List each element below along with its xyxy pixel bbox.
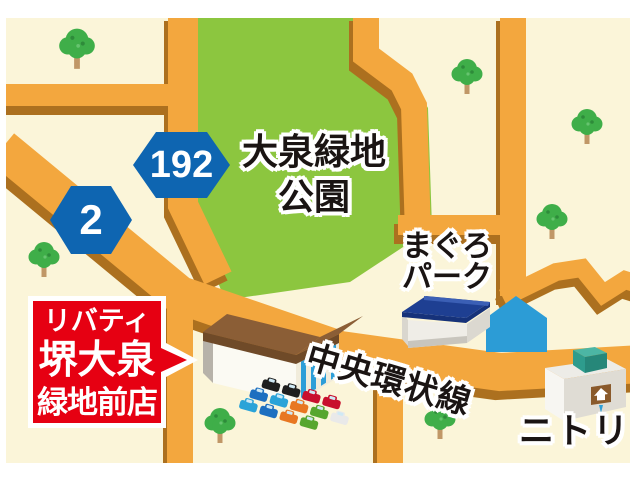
maguro-park-label: まぐろ パーク	[389, 231, 505, 293]
store-callout-line1: リバティ	[33, 304, 161, 339]
maguro-park-label-line2: パーク	[389, 262, 505, 293]
map-canvas: 大泉緑地 公園 192 2 まぐろ パーク 中央環状線 ニトリ リバティ 堺大泉…	[0, 0, 640, 480]
park-label-line1: 大泉緑地	[237, 129, 391, 174]
store-callout-line3: 緑地前店	[33, 382, 161, 423]
nitori-label: ニトリ	[519, 403, 630, 454]
route-sign-2-number: 2	[50, 186, 132, 254]
park-label: 大泉緑地 公園	[237, 129, 391, 219]
park-label-line2: 公園	[237, 174, 391, 219]
maguro-park-label-line1: まぐろ	[389, 231, 505, 262]
route-sign-192-number: 192	[133, 132, 230, 198]
store-callout-line2: 堺大泉	[33, 339, 161, 382]
store-callout-text: リバティ 堺大泉 緑地前店	[33, 304, 161, 423]
